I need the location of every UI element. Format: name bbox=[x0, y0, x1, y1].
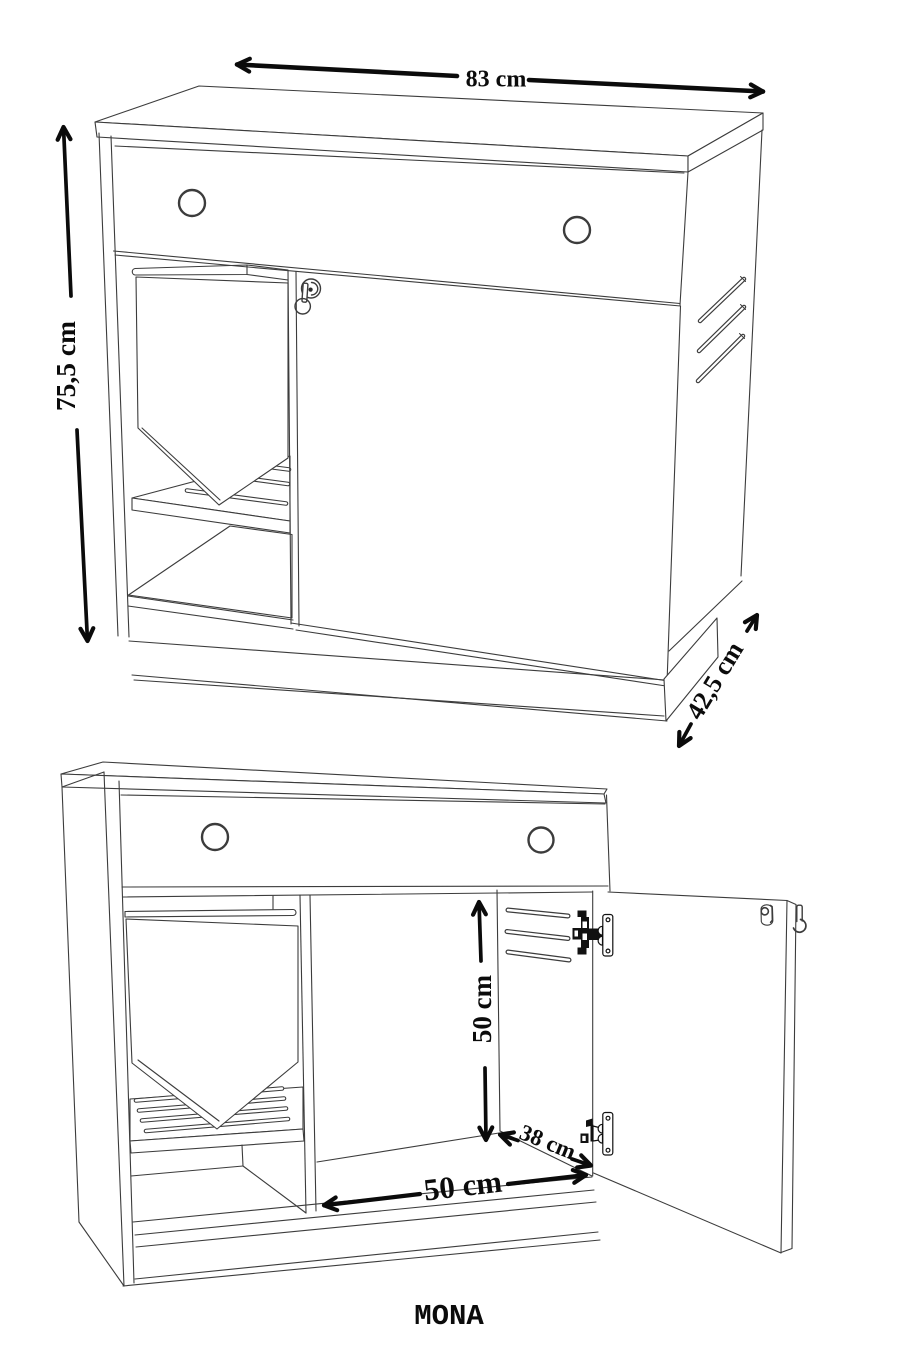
svg-text:83 cm: 83 cm bbox=[466, 67, 527, 93]
svg-text:50 cm: 50 cm bbox=[422, 1164, 504, 1208]
svg-text:50 cm: 50 cm bbox=[467, 974, 497, 1043]
svg-text:38 cm: 38 cm bbox=[516, 1120, 579, 1165]
svg-text:MONA: MONA bbox=[414, 1300, 484, 1333]
svg-text:75,5 cm: 75,5 cm bbox=[50, 321, 81, 411]
